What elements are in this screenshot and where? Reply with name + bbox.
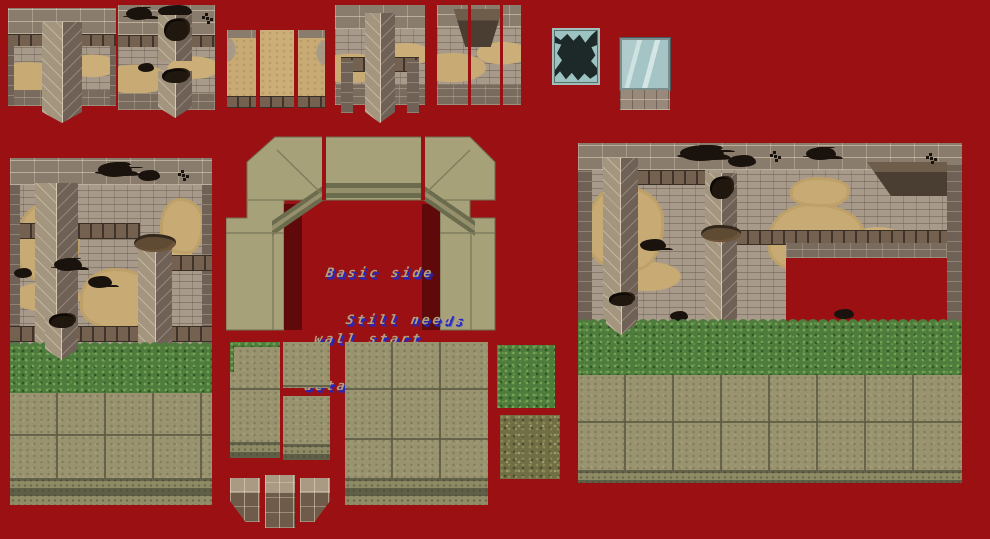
base-band bbox=[298, 96, 325, 108]
tile-wall-niche bbox=[437, 5, 521, 105]
glass-shard bbox=[555, 31, 596, 44]
tile-dry-grass bbox=[500, 415, 560, 479]
crack-hole bbox=[126, 7, 152, 20]
tile-sand-wall-strip bbox=[227, 30, 256, 106]
floor-seam bbox=[345, 388, 488, 390]
debris bbox=[774, 155, 777, 158]
tile-wall-column-corner bbox=[335, 5, 425, 105]
edge-column bbox=[8, 46, 14, 106]
floor-base-trim bbox=[578, 470, 962, 483]
glass-shard bbox=[555, 69, 597, 82]
tile-window-broken bbox=[552, 28, 600, 85]
pillar-light-face bbox=[42, 22, 63, 123]
crack-hole bbox=[806, 147, 836, 160]
tile-grass bbox=[497, 345, 555, 408]
floor-base-trim bbox=[283, 444, 330, 460]
floor-surface bbox=[283, 396, 330, 444]
tile-ruin-wall-large-right bbox=[578, 143, 962, 483]
edge-column bbox=[10, 185, 20, 345]
edge-column bbox=[578, 170, 592, 322]
tile-floor-piece-top bbox=[283, 342, 330, 388]
floor-seam bbox=[439, 342, 441, 478]
floor-base-trim bbox=[230, 442, 280, 458]
red-guide-line bbox=[500, 5, 503, 105]
glass-shard bbox=[555, 43, 564, 70]
tile-floor-piece-bottom bbox=[283, 396, 330, 460]
pillar-hole bbox=[164, 19, 188, 41]
base-band bbox=[227, 96, 256, 108]
tile-wall-pillar-straight bbox=[8, 8, 116, 106]
edge-column bbox=[947, 165, 962, 322]
pillar-dark-face bbox=[63, 22, 83, 123]
tile-ruin-wall-large-left bbox=[10, 158, 212, 505]
debris bbox=[930, 157, 933, 160]
crack-hole bbox=[54, 258, 82, 271]
tile-sand-wall-strip bbox=[298, 30, 325, 106]
tileset-sheet: Basic side wall start Still needs detail… bbox=[0, 0, 990, 539]
floor-seam bbox=[345, 438, 488, 440]
floor-seam bbox=[10, 434, 212, 436]
crack-hole bbox=[14, 268, 32, 278]
pillar-dirt-cap bbox=[701, 225, 741, 242]
glass-shard bbox=[589, 45, 597, 68]
side-post bbox=[407, 60, 419, 113]
crack-hole bbox=[138, 170, 160, 181]
pillar-capped bbox=[138, 240, 172, 348]
grass-fringe bbox=[230, 342, 234, 372]
underside-segment-left bbox=[230, 478, 260, 522]
crack-hole bbox=[88, 276, 112, 288]
edge-column bbox=[110, 46, 116, 106]
pillar-hole bbox=[710, 177, 732, 199]
debris bbox=[182, 174, 185, 177]
floor-base-trim bbox=[345, 478, 488, 505]
floor-surface bbox=[345, 342, 488, 478]
sand-fill bbox=[260, 30, 294, 96]
red-guide-line bbox=[468, 5, 471, 105]
floor-seam bbox=[283, 385, 330, 387]
grass-band bbox=[578, 322, 962, 375]
tile-window-glass bbox=[620, 38, 670, 110]
floor-seam bbox=[578, 421, 962, 423]
crack-hole bbox=[640, 239, 666, 251]
crack-hole bbox=[680, 145, 724, 161]
crack-hole bbox=[138, 63, 154, 72]
tile-wall-damaged bbox=[118, 5, 215, 110]
ledge-band bbox=[170, 255, 212, 271]
floor-surface bbox=[230, 342, 280, 442]
pillar bbox=[42, 22, 82, 123]
tile-doorway-underside bbox=[228, 473, 332, 530]
side-post bbox=[341, 60, 353, 113]
stub-broken-top bbox=[162, 69, 188, 83]
sand-fill bbox=[298, 38, 325, 96]
pillar-dirt-cap bbox=[134, 234, 176, 252]
tile-floor-large-3x3 bbox=[345, 342, 488, 505]
cutout-opening bbox=[786, 258, 947, 322]
floor-seam bbox=[230, 388, 280, 390]
floor-grid bbox=[10, 393, 212, 478]
crack-hole bbox=[98, 162, 132, 177]
base-band bbox=[437, 85, 521, 105]
pillar-light-face bbox=[365, 13, 381, 123]
floor-base-trim bbox=[10, 478, 212, 505]
glass-pane bbox=[620, 38, 670, 90]
sand-drift bbox=[790, 177, 850, 207]
floor-grid bbox=[578, 375, 962, 470]
pillar-light-face bbox=[138, 240, 156, 348]
tile-floor-edge-grass bbox=[230, 342, 280, 458]
window-sill bbox=[620, 90, 670, 110]
pillar-dark-face bbox=[156, 240, 173, 348]
wip-note-line: Still needs bbox=[314, 310, 467, 332]
grass-fringe bbox=[230, 342, 280, 347]
crack-hole bbox=[728, 155, 756, 167]
underside-segment-right bbox=[300, 478, 330, 522]
floor-seam bbox=[391, 342, 393, 478]
pillar bbox=[365, 13, 395, 123]
base-band bbox=[260, 96, 294, 108]
ledge-band bbox=[638, 170, 705, 185]
grass-band bbox=[10, 346, 212, 393]
debris bbox=[206, 17, 209, 20]
sand-fill bbox=[227, 38, 256, 96]
underside-segment-middle bbox=[265, 475, 295, 528]
stub-broken-top bbox=[609, 293, 633, 306]
pillar-dark-face bbox=[381, 13, 396, 123]
brick-row bbox=[786, 243, 947, 258]
stub-broken-top bbox=[49, 314, 74, 328]
tile-sand-wall-strip bbox=[260, 30, 294, 106]
